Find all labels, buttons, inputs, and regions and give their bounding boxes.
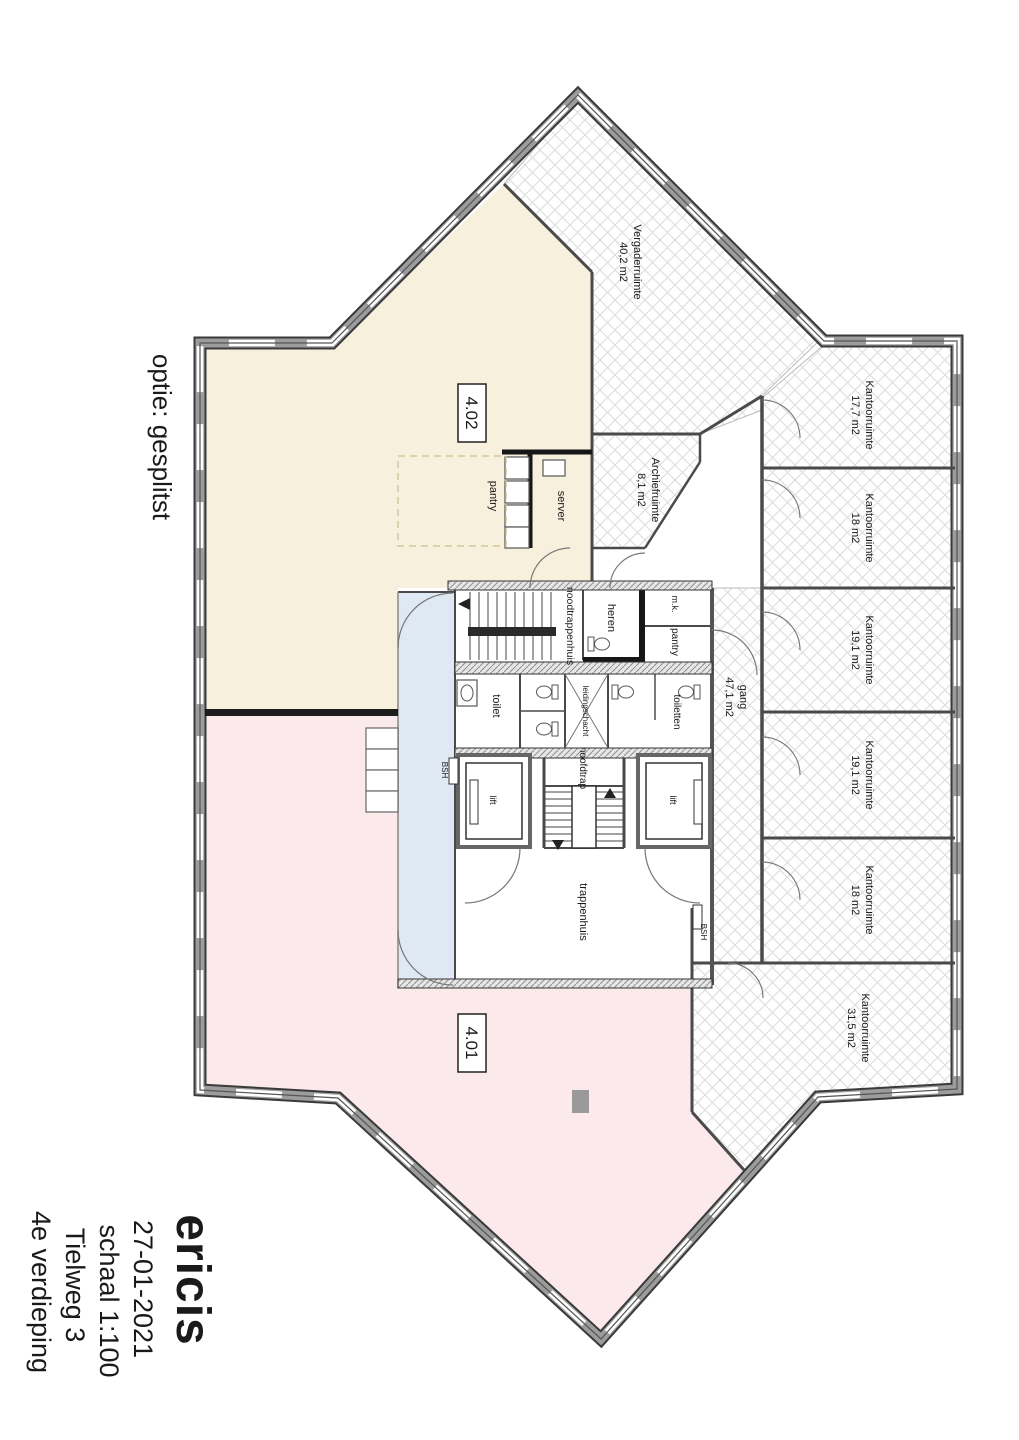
room-area: 19,1 m2 [849,755,861,795]
room-area: 18 m2 [849,885,861,916]
core-label-trappenhuis: trappenhuis [577,883,589,941]
toilet-icon [537,685,559,699]
stair-landing-bar [468,627,556,636]
core-label-pantry-small: pantry [669,628,680,656]
room-label: Archiefruimte [649,458,661,523]
title-block: ericis 27-01-2021 schaal 1:100 Tielweg 3… [26,1211,219,1378]
room-area: 40,2 m2 [617,242,629,282]
toilet-icon [537,722,559,736]
option-annotation: optie: gesplitst [147,354,177,521]
room-area: 31,5 m2 [845,1008,857,1048]
bsh-box-left [449,758,458,784]
region-circulation-strip [398,592,455,988]
room-area: 19,1 m2 [849,630,861,670]
company-logo: ericis [166,1214,219,1345]
room-area: 47,1 m2 [723,677,735,717]
floor-plan-svg: Vergaderruimte 40,2 m2 Archiefruimte 8,1… [0,0,1019,1440]
room-label: Kantoorruimte [863,740,875,809]
core-label-heren: heren [605,604,617,632]
room-label: gang [737,685,749,709]
room-area: 8,1 m2 [635,473,647,507]
core-label-lift-left: lift [488,796,498,805]
floor-plan-page: Vergaderruimte 40,2 m2 Archiefruimte 8,1… [0,0,1019,1440]
region-fills [205,98,955,1339]
title-address: Tielweg 3 [60,1228,90,1343]
title-scale: schaal 1:100 [94,1224,124,1377]
title-date: 27-01-2021 [128,1220,158,1358]
room-area: 18 m2 [849,513,861,544]
column-block [572,1090,589,1113]
room-label: Kantoorruimte [863,615,875,684]
core-label-mk: m.k. [670,596,680,613]
core-label-bsh-right: BSH [699,924,708,941]
title-floor: 4e verdieping [26,1211,56,1373]
room-label: Kantoorruimte [863,493,875,562]
room-label: Kantoorruimte [863,380,875,449]
core-label-noodtrappenhuis: noodtrappenhuis [564,587,576,665]
label-server: server [555,491,567,522]
sink-icon [457,680,477,706]
unit-401-label: 4.01 [462,1026,481,1059]
core-label-toiletten: toiletten [671,694,682,729]
toilet-icon [612,685,634,699]
room-label: Kantoorruimte [863,865,875,934]
core-label-toilet: toilet [490,694,502,717]
region-gang [712,588,762,963]
region-kantoor-6 [692,963,955,1170]
toilet-icon [588,637,610,651]
room-area: 17,7 m2 [849,395,861,435]
unit-402-label: 4.02 [462,396,481,429]
core-label-leidingschacht: leidingschacht [581,686,590,737]
core-label-hoofdtrap: hoofdtrap [577,747,588,790]
room-label: Kantoorruimte [859,993,871,1062]
kitchen-cabinets [366,728,398,812]
core-label-lift-right: lift [668,796,678,805]
room-label: Vergaderruimte [631,224,643,299]
core-label-bsh-left: BSH [440,762,449,779]
label-pantry: pantry [487,481,499,512]
